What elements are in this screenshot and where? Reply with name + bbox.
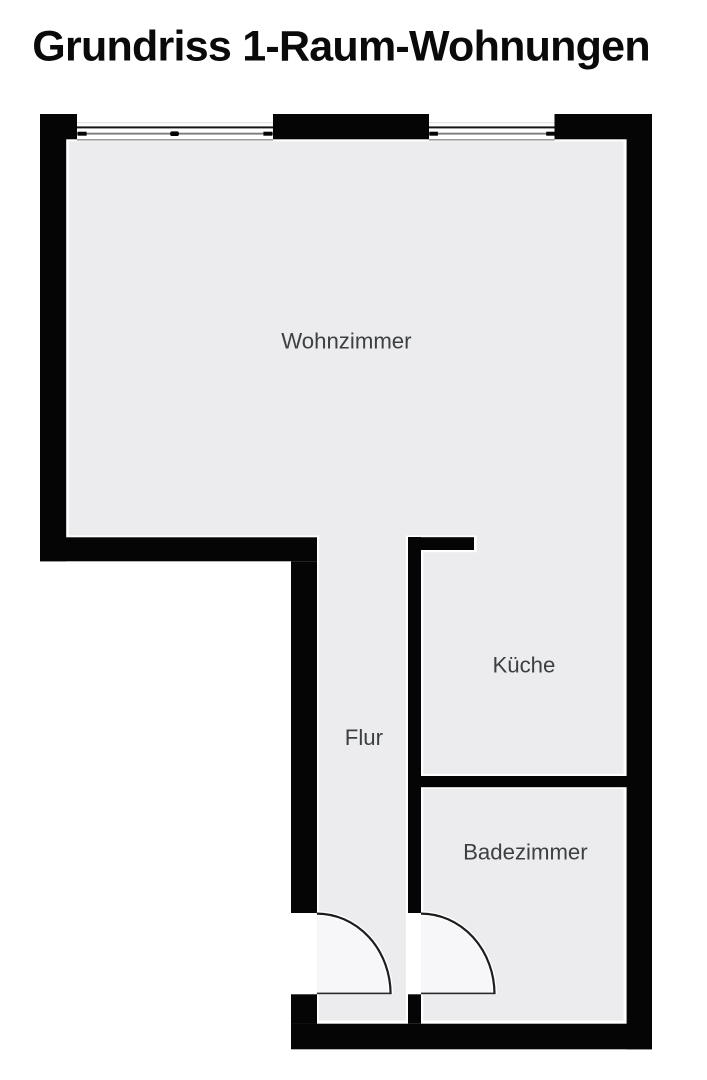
svg-text:Badezimmer: Badezimmer [463, 839, 588, 864]
svg-text:Flur: Flur [345, 725, 384, 750]
svg-text:Küche: Küche [492, 653, 555, 678]
svg-text:Wohnzimmer: Wohnzimmer [281, 328, 412, 353]
svg-text:Grundriss 1-Raum-Wohnungen: Grundriss 1-Raum-Wohnungen [32, 23, 650, 71]
